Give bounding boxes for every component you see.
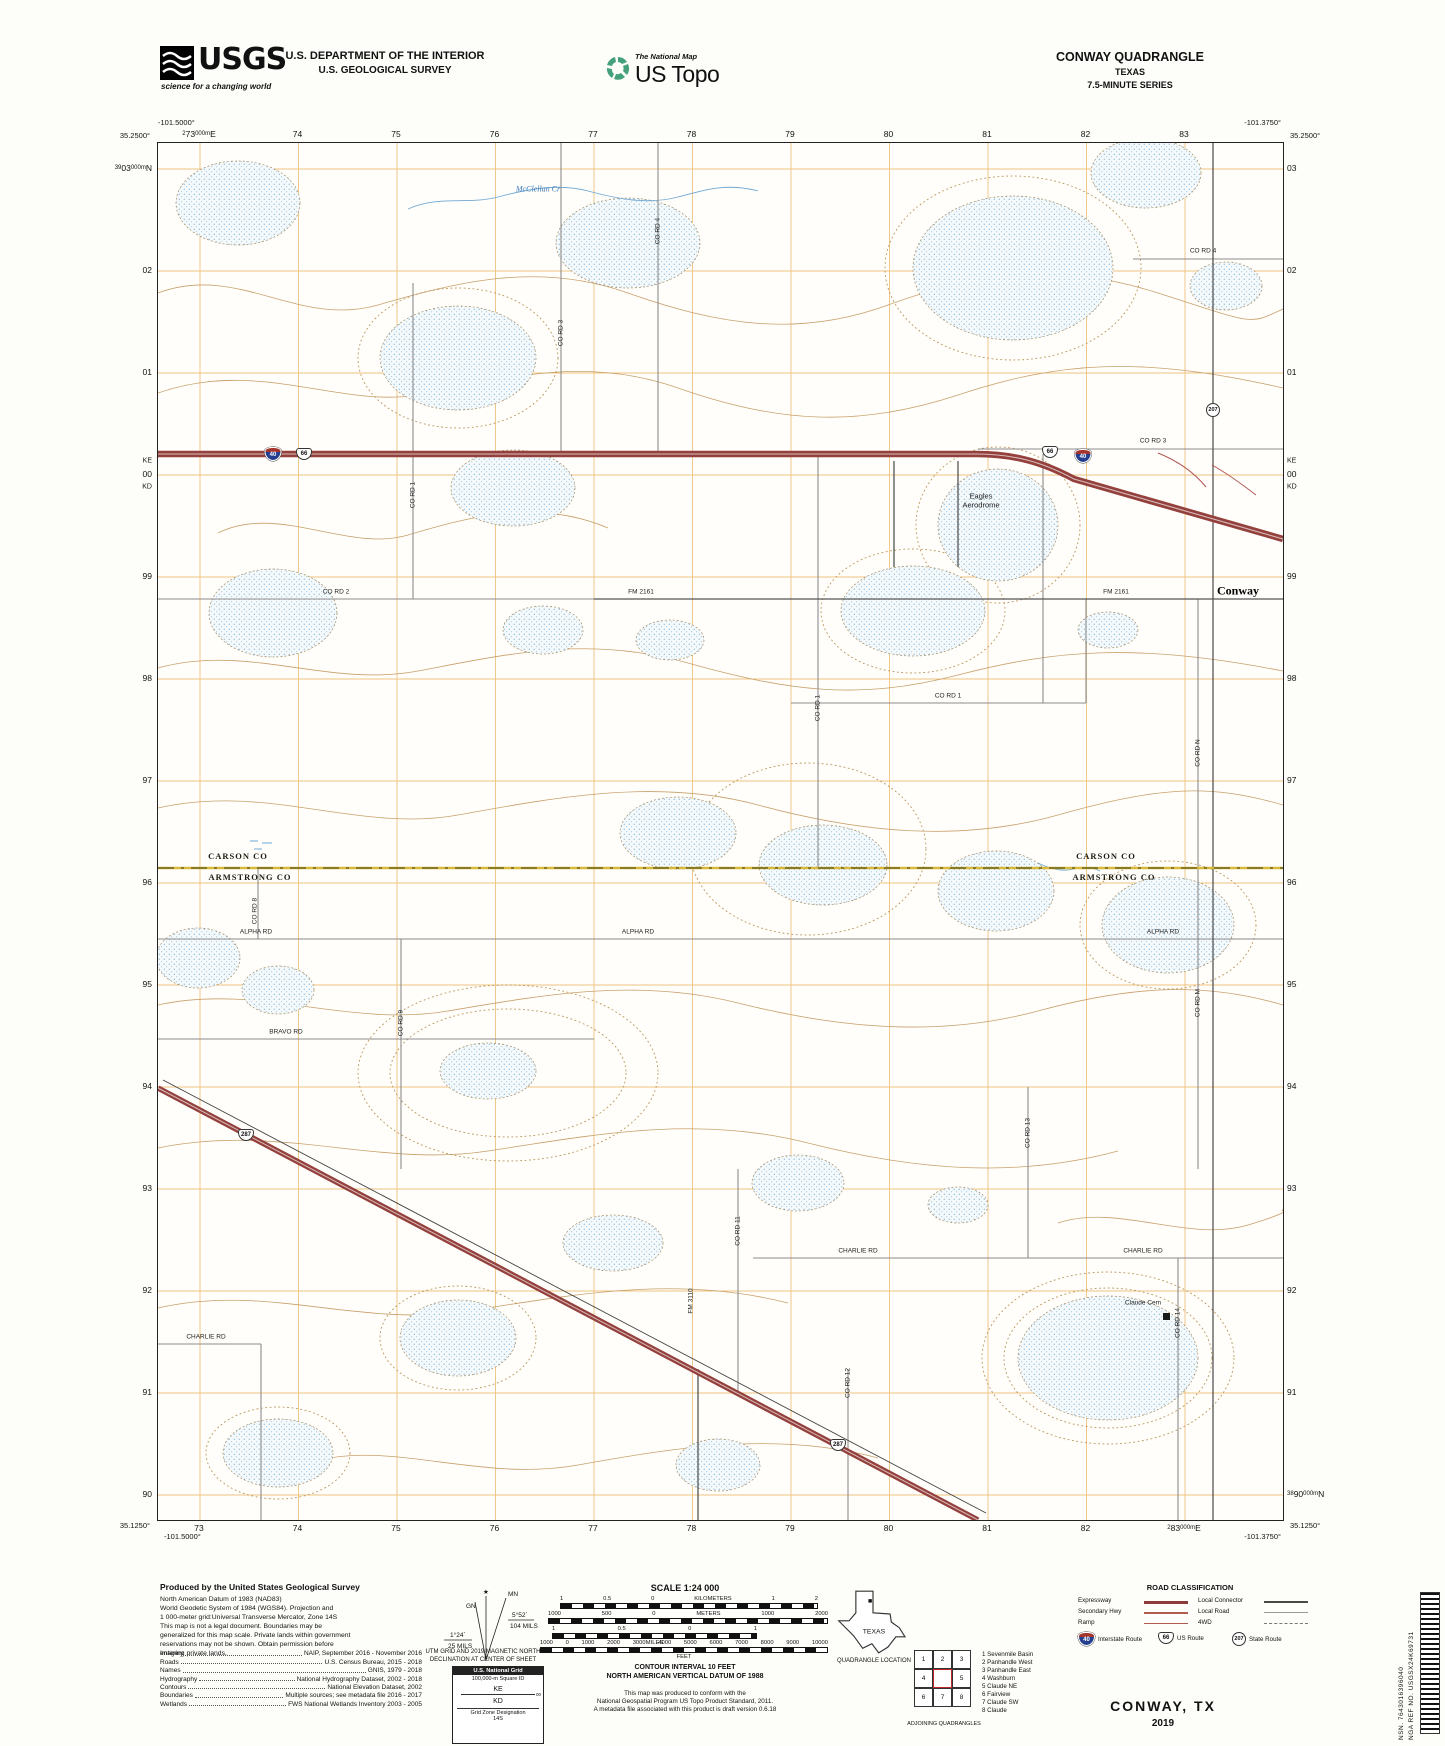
corner-bl-lon: -101.5000° [164, 1532, 201, 1541]
nsn-number: NSN. 7643016396040 [1398, 1590, 1405, 1740]
grid-label-top: 80 [884, 129, 893, 139]
scale-bar-labels: 1000010002000300040005000600070008000900… [540, 1640, 828, 1646]
grid-label-top: 74 [293, 129, 302, 139]
adjoining-list-item: 6 Fairview [982, 1691, 1033, 1699]
ramps [1158, 453, 1256, 495]
grid-label-right: 03 [1287, 163, 1296, 173]
vertical-datum-note: NORTH AMERICAN VERTICAL DATUM OF 1988 [545, 1673, 825, 1680]
adjoining-list-item: 8 Claude [982, 1707, 1033, 1715]
datum-line: World Geodetic System of 1984 (WGS84). P… [160, 1604, 428, 1613]
credit-label: Imagery [160, 1650, 183, 1657]
nga-ref-number: NGA REF NO. USGSX24K69731 [1408, 1590, 1415, 1740]
scale-bar-rule [560, 1603, 818, 1609]
road-class-sample [1144, 1601, 1188, 1604]
grid-label-bottom: 76 [490, 1523, 499, 1533]
road-class-sample [1144, 1623, 1188, 1624]
quad-state: TEXAS [1000, 67, 1260, 77]
credit-leader [185, 1655, 301, 1656]
scale-bar-labels: 10.50KILOMETERS12 [560, 1596, 818, 1602]
credit-row: BoundariesMultiple sources; see metadata… [160, 1691, 422, 1699]
adjoining-cell: 3 [952, 1650, 972, 1670]
adjoining-list-item: 1 Sevenmile Basin [982, 1651, 1033, 1659]
dept-line1: U.S. DEPARTMENT OF THE INTERIOR [255, 50, 515, 62]
scale-bar-label: KILOMETERS [694, 1596, 731, 1602]
adjoining-cell-current [933, 1669, 953, 1689]
credit-leader [189, 1705, 286, 1706]
scale-bar-label: 500 [602, 1611, 612, 1617]
scale-bar-rule [548, 1618, 828, 1624]
scale-bar-labels: 10005000METERS10002000 [548, 1611, 828, 1617]
credit-leader [181, 1663, 323, 1664]
scale-title: SCALE 1:24 000 [545, 1583, 825, 1593]
scale-bar: 10005000METERS10002000 [548, 1611, 828, 1624]
adjoining-cell: 6 [914, 1688, 934, 1708]
adjoining-cell: 7 [933, 1688, 953, 1708]
decl-east: 5°52´ [512, 1611, 528, 1619]
state-route-shield: 207 [1232, 1632, 1246, 1646]
credit-label: Names [160, 1667, 181, 1674]
usng-subtitle: 100,000-m Square ID [453, 1676, 543, 1682]
road-class-label: Local Connector [1198, 1597, 1243, 1604]
adjoining-list-item: 2 Panhandle West [982, 1659, 1033, 1667]
credit-leader [183, 1672, 366, 1673]
road-class-shield-label: State Route [1249, 1636, 1282, 1643]
product-standard-note: This map was produced to conform with th… [520, 1690, 850, 1714]
road-class-label: Ramp [1078, 1619, 1095, 1626]
usng-title: U.S. National Grid [453, 1667, 543, 1675]
grid-label-bottom: 283000mE [1167, 1523, 1201, 1533]
scale-bar-label: 1 [772, 1596, 775, 1602]
scale-bar-label: METERS [696, 1611, 720, 1617]
credit-value: Multiple sources; see metadata file 2016… [285, 1692, 422, 1699]
road-class-label: Expressway [1078, 1597, 1111, 1604]
us-topo-label: US Topo [635, 61, 719, 88]
decl-west: 1°24´ [450, 1631, 466, 1639]
quadrangle-location: TEXAS [836, 1590, 910, 1659]
credit-leader [195, 1697, 284, 1698]
produced-by: Produced by the United States Geological… [160, 1582, 360, 1592]
quadrangle-title-block: CONWAY QUADRANGLE TEXAS 7.5-MINUTE SERIE… [1000, 50, 1260, 90]
scale-bar-label: 5000 [684, 1640, 697, 1646]
grid-label-left: 98 [143, 673, 152, 683]
grid-square-kd: KD [142, 484, 152, 491]
grid-label-bottom: 74 [293, 1523, 302, 1533]
grid-label-left: 90 [143, 1489, 152, 1499]
decl-east-mils: 104 MILS [510, 1623, 538, 1630]
grid-label-left: 95 [143, 979, 152, 989]
dept-line2: U.S. GEOLOGICAL SURVEY [255, 65, 515, 76]
us-topo-logo: The National Map US Topo [605, 52, 719, 88]
scale-bar-label: 0 [651, 1596, 654, 1602]
scale-bar-label: 6000 [709, 1640, 722, 1646]
credit-value: FWS National Wetlands Inventory 2003 - 2… [288, 1701, 422, 1708]
scale-bar-label: 4000 [658, 1640, 671, 1646]
scale-bar-label: 0 [566, 1640, 569, 1646]
grid-label-top: 76 [490, 129, 499, 139]
interstate-shield: 40 [1078, 1632, 1095, 1646]
scale-bar-label: 8000 [761, 1640, 774, 1646]
corner-tr-lat: 35.2500° [1290, 131, 1320, 140]
credit-leader [188, 1688, 325, 1689]
scale-bar-label: 1000 [540, 1640, 553, 1646]
map-drawing [158, 143, 1283, 1520]
credit-value: National Elevation Dataset, 2002 [327, 1684, 422, 1691]
grid-label-left: 92 [143, 1285, 152, 1295]
grid-label-bottom: 82 [1081, 1523, 1090, 1533]
adjoining-quadrangle-list: 1 Sevenmile Basin2 Panhandle West3 Panha… [982, 1651, 1033, 1715]
scale-bar-label: 3000 [633, 1640, 646, 1646]
department-heading: U.S. DEPARTMENT OF THE INTERIOR U.S. GEO… [255, 50, 515, 76]
adjoining-list-item: 7 Claude SW [982, 1699, 1033, 1707]
grid-label-left: 02 [143, 265, 152, 275]
grid-label-top: 81 [982, 129, 991, 139]
grid-label-right: 98 [1287, 673, 1296, 683]
quad-location-marker [868, 1599, 871, 1602]
credit-row: WetlandsFWS National Wetlands Inventory … [160, 1699, 422, 1707]
road-class-shield-entry: 66US Route [1158, 1632, 1204, 1644]
road-class-row: Secondary HwyLocal Road [1078, 1608, 1308, 1618]
national-map-icon [605, 55, 631, 86]
grid-label-bottom: 77 [588, 1523, 597, 1533]
scale-bar-label: 1000 [582, 1640, 595, 1646]
standard-note-line: National Geospatial Program US Topo Prod… [520, 1698, 850, 1706]
standard-note-line: This map was produced to conform with th… [520, 1690, 850, 1698]
scale-bar-labels: 10.501 [552, 1626, 757, 1632]
scale-bar-label: 1 [754, 1626, 757, 1632]
grid-label-right: 96 [1287, 877, 1296, 887]
credit-row: ContoursNational Elevation Dataset, 2002 [160, 1683, 422, 1691]
scale-bar-label: 1000 [548, 1611, 561, 1617]
grid-label-right: 97 [1287, 775, 1296, 785]
usgs-logo-icon [160, 46, 194, 80]
usgs-tagline: science for a changing world [161, 82, 271, 91]
grid-label-right: 02 [1287, 265, 1296, 275]
scale-bar-label: 2000 [815, 1611, 828, 1617]
road-class-sample [1264, 1612, 1308, 1613]
scale-bar-label: 9000 [786, 1640, 799, 1646]
scale-bar-label: 0.5 [603, 1596, 611, 1602]
map-area: McClellan CrCO RD 3CO RD 4CO RD 4CO RD 3… [157, 142, 1284, 1521]
grid-label-bottom: 81 [982, 1523, 991, 1533]
credit-row: ImageryNAIP, September 2016 - November 2… [160, 1649, 422, 1657]
cemetery-marker [1163, 1313, 1170, 1320]
road-class-shield-label: Interstate Route [1098, 1636, 1142, 1643]
quad-series: 7.5-MINUTE SERIES [1000, 80, 1260, 90]
grid-label-right: 93 [1287, 1183, 1296, 1193]
grid-square-ke: KE [1287, 458, 1296, 465]
corner-tl-lon: -101.5000° [158, 118, 195, 127]
grid-label-right: 99 [1287, 571, 1296, 581]
grid-label-bottom: 79 [785, 1523, 794, 1533]
scale-bar-label: 1 [560, 1596, 563, 1602]
barcode [1420, 1592, 1440, 1734]
grid-label-right: 95 [1287, 979, 1296, 989]
grid-label-left: 00 [143, 469, 152, 479]
scale-bar-label: 0 [652, 1611, 655, 1617]
scale-bar-unit: FEET [540, 1654, 828, 1660]
grid-square-kd: KD [1287, 484, 1297, 491]
road-class-sample [1144, 1612, 1188, 1614]
scale-bar: 10.50KILOMETERS12 [560, 1596, 818, 1609]
grid-square-ke: KE [143, 458, 152, 465]
decl-mn: MN [508, 1591, 518, 1598]
grid-label-top: 273000mE [182, 129, 216, 139]
credit-value: GNIS, 1979 - 2018 [368, 1667, 422, 1674]
road-class-label: Local Road [1198, 1608, 1229, 1615]
grid-label-top: 78 [687, 129, 696, 139]
scale-bar-label: 1000 [761, 1611, 774, 1617]
grid-label-left: 01 [143, 367, 152, 377]
us-topo-logo-text: The National Map US Topo [635, 52, 719, 88]
datum-line: reservations may not be shown. Obtain pe… [160, 1640, 428, 1649]
data-credits: ImageryNAIP, September 2016 - November 2… [160, 1649, 422, 1708]
corner-bl-lat: 35.1250° [120, 1521, 150, 1530]
road-class-sample [1264, 1623, 1308, 1624]
scale-bar-label: 0.5 [618, 1626, 626, 1632]
scale-bar-label: 1 [552, 1626, 555, 1632]
grid-label-left: 96 [143, 877, 152, 887]
road-classification-title: ROAD CLASSIFICATION [1075, 1583, 1305, 1592]
corner-tr-lon: -101.3750° [1244, 118, 1281, 127]
scale-bar-label: 2 [815, 1596, 818, 1602]
texas-label: TEXAS [863, 1628, 886, 1635]
datum-line: This map is not a legal document. Bounda… [160, 1622, 428, 1631]
adjoining-quadrangle-grid: 12345678 [914, 1650, 971, 1707]
credit-row: NamesGNIS, 1979 - 2018 [160, 1666, 422, 1674]
scale-bar-label: 2000 [607, 1640, 620, 1646]
road-class-shield-entry: 40Interstate Route [1078, 1632, 1142, 1646]
road-class-shield-entry: 207State Route [1232, 1632, 1282, 1646]
scale-bar: 1000010002000300040005000600070008000900… [540, 1640, 828, 1660]
adjoining-list-item: 3 Panhandle East [982, 1667, 1033, 1675]
adjoining-caption: ADJOINING QUADRANGLES [884, 1721, 1004, 1727]
adjoining-cell: 8 [952, 1688, 972, 1708]
grid-label-left: 93 [143, 1183, 152, 1193]
datum-line: generalized for this map scale. Private … [160, 1631, 428, 1640]
credit-label: Wetlands [160, 1701, 187, 1708]
us-route-shield: 66 [1158, 1632, 1174, 1644]
grid-label-left: 97 [143, 775, 152, 785]
credit-row: HydrographyNational Hydrography Dataset,… [160, 1674, 422, 1682]
credit-leader [199, 1680, 294, 1681]
scale-bar-rule [552, 1633, 757, 1639]
usng-zone: 14S [453, 1716, 543, 1722]
datum-line: North American Datum of 1983 (NAD83) [160, 1595, 428, 1604]
road-class-row: ExpresswayLocal Connector [1078, 1597, 1308, 1607]
corner-tl-lat: 35.2500° [120, 131, 150, 140]
credit-label: Roads [160, 1659, 179, 1666]
grid-label-top: 77 [588, 129, 597, 139]
credit-label: Boundaries [160, 1692, 193, 1699]
scale-bar-label: 7000 [735, 1640, 748, 1646]
sheet-title: CONWAY, TX [1063, 1698, 1263, 1714]
decl-gn: GN [466, 1603, 476, 1610]
grid-label-top: 82 [1081, 129, 1090, 139]
state-route-shield: 207 [1206, 403, 1220, 417]
grid-label-left: 91 [143, 1387, 152, 1397]
scale-bar-rule [540, 1647, 828, 1653]
grid-label-bottom: 75 [391, 1523, 400, 1533]
credit-row: RoadsU.S. Census Bureau, 2015 - 2018 [160, 1657, 422, 1665]
scale-bar-label: 0 [688, 1626, 691, 1632]
grid-label-right: 91 [1287, 1387, 1296, 1397]
adjoining-list-item: 5 Claude NE [982, 1683, 1033, 1691]
grid-label-bottom: 78 [687, 1523, 696, 1533]
road-class-row: Ramp4WD [1078, 1619, 1308, 1629]
scale-bar-label: 10000 [812, 1640, 828, 1646]
grid-label-bottom: 80 [884, 1523, 893, 1533]
adjoining-cell: 4 [914, 1669, 934, 1689]
road-class-label: Secondary Hwy [1078, 1608, 1121, 1615]
grid-label-top: 75 [391, 129, 400, 139]
road-class-shield-label: US Route [1177, 1635, 1204, 1642]
grid-label-top: 79 [785, 129, 794, 139]
quad-name: CONWAY QUADRANGLE [1000, 50, 1260, 64]
credit-label: Contours [160, 1684, 186, 1691]
national-map-label: The National Map [635, 52, 719, 61]
grid-label-left: 94 [143, 1081, 152, 1091]
grid-label-left: 3903000mN [115, 163, 152, 173]
grid-label-left: 99 [143, 571, 152, 581]
standard-note-line: A metadata file associated with this pro… [520, 1706, 850, 1714]
adjoining-cell: 2 [933, 1650, 953, 1670]
decl-star: ★ [483, 1588, 489, 1596]
sheet-year: 2019 [1063, 1718, 1263, 1729]
contour-interval-note: CONTOUR INTERVAL 10 FEET [545, 1664, 825, 1671]
adjoining-list-item: 4 Washburn [982, 1675, 1033, 1683]
datum-line: 1 000-meter grid:Universal Transverse Me… [160, 1613, 428, 1622]
road-class-sample [1264, 1601, 1308, 1603]
grid-label-right: 01 [1287, 367, 1296, 377]
adjoining-cell: 5 [952, 1669, 972, 1689]
grid-label-right: 94 [1287, 1081, 1296, 1091]
credit-label: Hydrography [160, 1676, 197, 1683]
grid-label-top: 83 [1179, 129, 1188, 139]
adjoining-cell: 1 [914, 1650, 934, 1670]
road-class-label: 4WD [1198, 1619, 1212, 1626]
grid-label-bottom: 73 [194, 1523, 203, 1533]
grid-label-right: 00 [1287, 469, 1296, 479]
grid-label-right: 3890000mN [1287, 1489, 1324, 1499]
corner-br-lat: 35.1250° [1290, 1521, 1320, 1530]
grid-label-right: 92 [1287, 1285, 1296, 1295]
usgs-topo-sheet: USGS science for a changing world U.S. D… [0, 0, 1445, 1746]
corner-br-lon: -101.3750° [1244, 1532, 1281, 1541]
credit-value: National Hydrography Dataset, 2002 - 201… [297, 1676, 422, 1683]
